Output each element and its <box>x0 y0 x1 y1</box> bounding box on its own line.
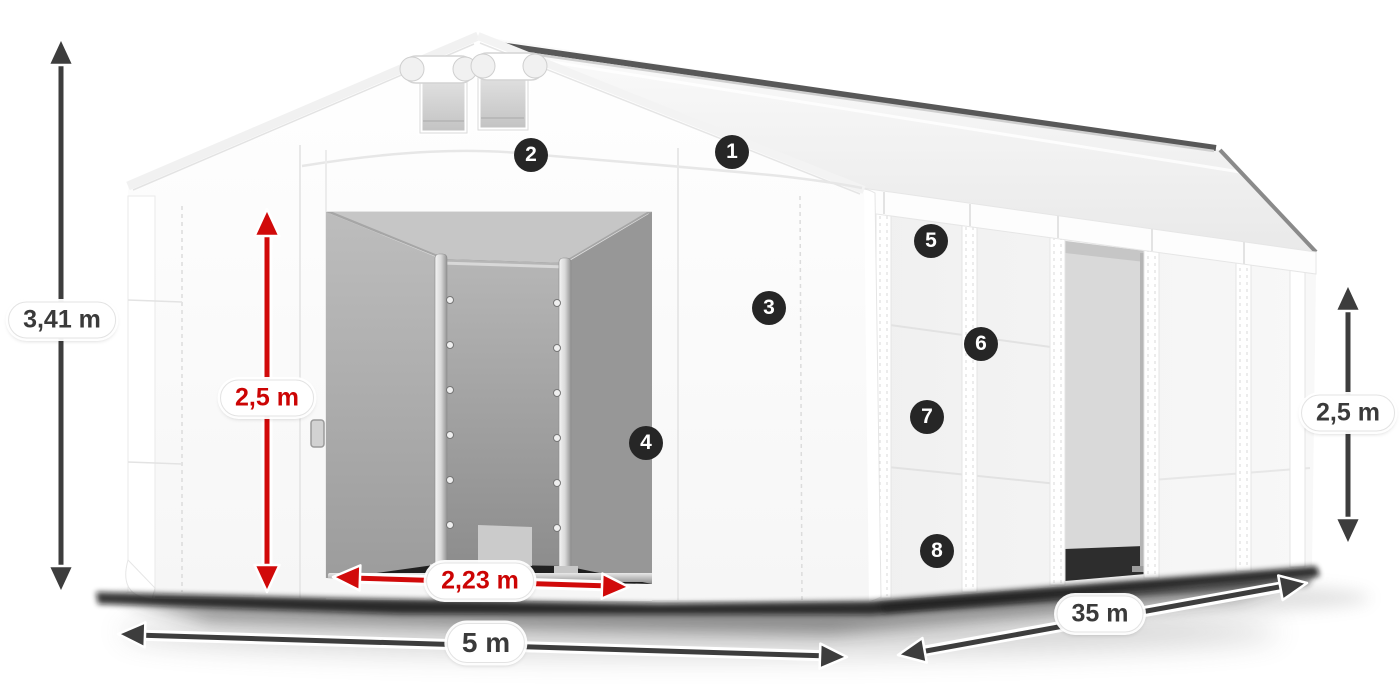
door-handle-icon <box>311 420 324 447</box>
dimension-label-length: 35 m <box>1057 596 1144 633</box>
callout-badge-3: 3 <box>752 291 786 325</box>
tent-illustration <box>0 0 1400 700</box>
callout-badge-5: 5 <box>914 224 948 258</box>
tent-dimension-diagram: 3,41 m 2,5 m 2,23 m 5 m 35 m 2,5 m 1 2 3… <box>0 0 1400 700</box>
callout-badge-4: 4 <box>629 426 663 460</box>
callout-badge-2: 2 <box>514 138 548 172</box>
dimension-label-door-width: 2,23 m <box>426 563 534 600</box>
callout-badge-7: 7 <box>910 400 944 434</box>
dimension-label-total-height: 3,41 m <box>8 302 116 339</box>
door-interior <box>326 212 654 584</box>
callout-badge-8: 8 <box>920 534 954 568</box>
callout-badge-6: 6 <box>964 327 998 361</box>
callout-badge-1: 1 <box>715 135 749 169</box>
dimension-label-width: 5 m <box>447 623 525 663</box>
dimension-label-door-height: 2,5 m <box>220 380 314 417</box>
dimension-label-side-height: 2,5 m <box>1301 395 1395 432</box>
